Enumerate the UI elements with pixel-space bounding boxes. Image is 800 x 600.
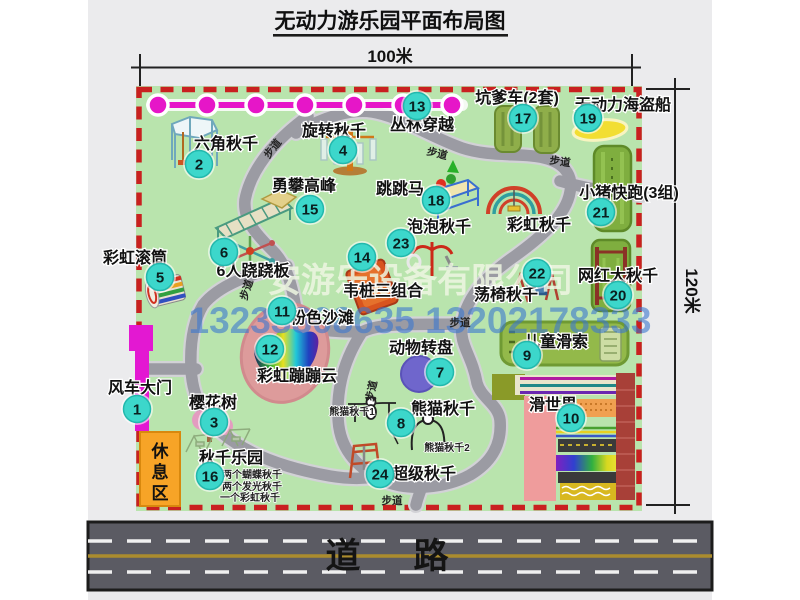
- svg-text:19: 19: [580, 111, 597, 128]
- svg-text:16: 16: [202, 469, 219, 486]
- svg-text:2: 2: [195, 157, 203, 174]
- svg-text:休息区: 休息区: [151, 441, 170, 503]
- svg-text:22: 22: [529, 266, 546, 283]
- svg-text:勇攀高峰: 勇攀高峰: [272, 176, 337, 195]
- svg-text:步道: 步道: [382, 494, 403, 507]
- svg-text:4: 4: [339, 143, 348, 160]
- svg-text:11: 11: [274, 304, 290, 321]
- svg-text:韦桩三组合: 韦桩三组合: [343, 281, 424, 300]
- svg-text:熊猫秋千1: 熊猫秋千1: [329, 405, 375, 418]
- svg-text:12: 12: [262, 342, 279, 359]
- svg-text:粉色沙滩: 粉色沙滩: [290, 308, 354, 327]
- svg-text:6: 6: [220, 245, 228, 262]
- svg-text:100米: 100米: [367, 46, 413, 66]
- svg-text:10: 10: [563, 411, 580, 428]
- svg-text:21: 21: [593, 205, 610, 222]
- svg-text:14: 14: [354, 250, 371, 267]
- svg-text:24: 24: [372, 467, 389, 484]
- svg-text:23: 23: [393, 236, 410, 253]
- svg-text:彩虹蹦蹦云: 彩虹蹦蹦云: [256, 366, 337, 385]
- svg-text:7: 7: [436, 365, 444, 382]
- svg-text:熊猫秋千: 熊猫秋千: [411, 399, 475, 418]
- svg-text:一个彩虹秋千: 一个彩虹秋千: [220, 491, 280, 504]
- svg-text:9: 9: [523, 348, 531, 365]
- svg-text:彩虹秋千: 彩虹秋千: [506, 215, 571, 234]
- svg-text:15: 15: [302, 202, 319, 219]
- svg-text:跳跳马: 跳跳马: [376, 179, 424, 198]
- svg-text:5: 5: [156, 270, 164, 287]
- svg-text:泡泡秋千: 泡泡秋千: [407, 217, 471, 236]
- svg-text:道: 道: [325, 537, 360, 576]
- svg-text:20: 20: [610, 288, 627, 305]
- svg-text:1: 1: [133, 402, 141, 419]
- svg-text:超级秋千: 超级秋千: [391, 464, 456, 483]
- svg-text:两个发光秋千: 两个发光秋千: [222, 480, 282, 493]
- svg-text:动物转盘: 动物转盘: [389, 338, 453, 357]
- svg-text:3: 3: [210, 415, 218, 432]
- svg-text:两个蝴蝶秋千: 两个蝴蝶秋千: [222, 468, 282, 481]
- svg-text:熊猫秋千2: 熊猫秋千2: [424, 441, 470, 454]
- svg-text:步道: 步道: [450, 316, 471, 329]
- svg-text:120米: 120米: [682, 268, 702, 314]
- svg-text:荡椅秋千: 荡椅秋千: [474, 285, 538, 304]
- svg-text:13: 13: [409, 99, 426, 116]
- svg-text:17: 17: [515, 111, 532, 128]
- svg-text:18: 18: [428, 193, 445, 210]
- svg-text:8: 8: [397, 416, 405, 433]
- svg-text:无动力游乐园平面布局图: 无动力游乐园平面布局图: [275, 9, 506, 33]
- svg-text:路: 路: [413, 537, 449, 576]
